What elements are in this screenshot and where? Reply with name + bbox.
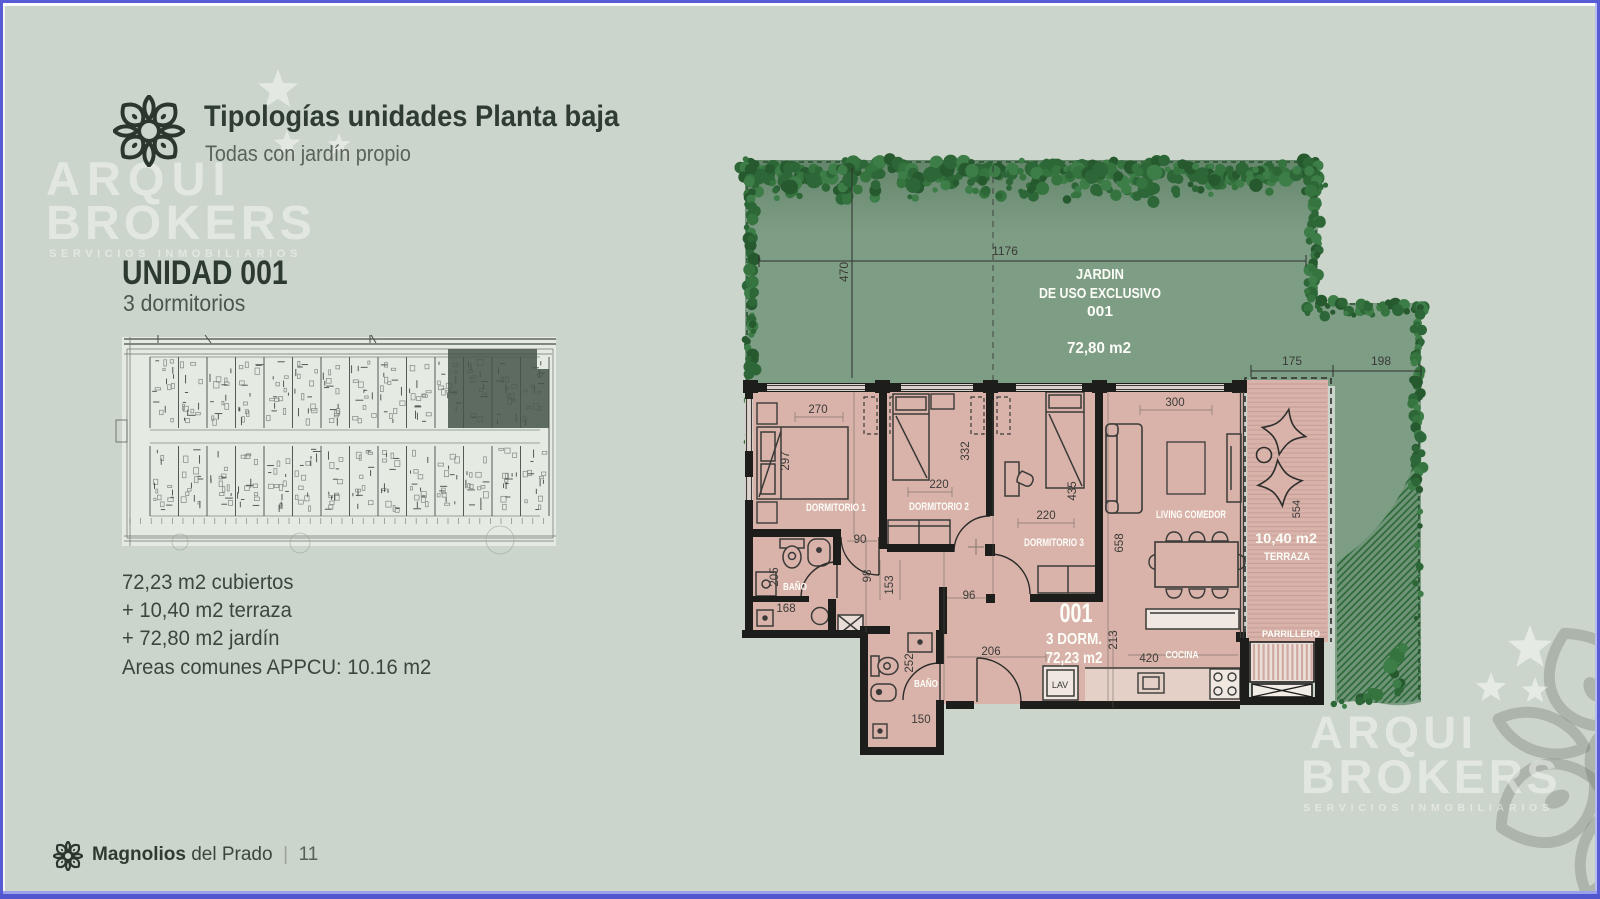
svg-text:297: 297 (780, 451, 792, 470)
svg-text:DORMITORIO 1: DORMITORIO 1 (806, 502, 866, 514)
svg-text:220: 220 (929, 479, 948, 491)
svg-text:206: 206 (981, 646, 1000, 658)
svg-text:BROKERS: BROKERS (1301, 750, 1561, 803)
svg-text:LIVING COMEDOR: LIVING COMEDOR (1156, 509, 1226, 521)
svg-text:10,40 m2: 10,40 m2 (1255, 530, 1317, 546)
svg-text:DE USO EXCLUSIVO: DE USO EXCLUSIVO (1039, 285, 1161, 302)
svg-text:435: 435 (1067, 481, 1079, 500)
svg-text:PARRILLERO: PARRILLERO (1262, 629, 1320, 640)
svg-text:175: 175 (1282, 354, 1302, 368)
svg-text:BROKERS: BROKERS (46, 197, 316, 250)
svg-text:SERVICIOS INMOBILIARIOS: SERVICIOS INMOBILIARIOS (1303, 802, 1554, 814)
svg-text:BAÑO: BAÑO (783, 580, 807, 593)
svg-text:332: 332 (960, 441, 972, 460)
svg-text:DORMITORIO 2: DORMITORIO 2 (909, 501, 969, 513)
svg-text:554: 554 (1291, 500, 1303, 518)
svg-text:198: 198 (1371, 354, 1391, 368)
svg-text:98: 98 (862, 570, 874, 583)
svg-text:72,23 m2: 72,23 m2 (1046, 650, 1103, 667)
svg-text:JARDIN: JARDIN (1076, 266, 1124, 283)
svg-text:168: 168 (776, 603, 795, 615)
svg-text:TERRAZA: TERRAZA (1264, 551, 1310, 563)
svg-text:213: 213 (1108, 630, 1120, 649)
svg-text:1176: 1176 (992, 244, 1018, 258)
svg-text:270: 270 (808, 404, 827, 416)
svg-text:150: 150 (911, 714, 930, 726)
svg-text:96: 96 (963, 590, 976, 602)
svg-text:90: 90 (854, 534, 867, 546)
svg-text:220: 220 (1036, 510, 1055, 522)
svg-text:72,80 m2: 72,80 m2 (1067, 340, 1131, 357)
svg-text:BAÑO: BAÑO (914, 677, 938, 690)
svg-text:470: 470 (837, 262, 851, 282)
svg-text:LAV: LAV (1052, 680, 1068, 690)
svg-text:3 DORM.: 3 DORM. (1046, 631, 1102, 648)
svg-text:DORMITORIO 3: DORMITORIO 3 (1024, 537, 1084, 549)
svg-text:COCINA: COCINA (1166, 650, 1199, 661)
svg-text:252: 252 (904, 653, 916, 672)
svg-text:658: 658 (1114, 533, 1126, 552)
svg-text:205: 205 (769, 567, 781, 586)
svg-text:153: 153 (884, 575, 896, 594)
svg-text:001: 001 (1087, 303, 1113, 320)
svg-text:001: 001 (1060, 598, 1093, 628)
svg-text:300: 300 (1165, 397, 1184, 409)
